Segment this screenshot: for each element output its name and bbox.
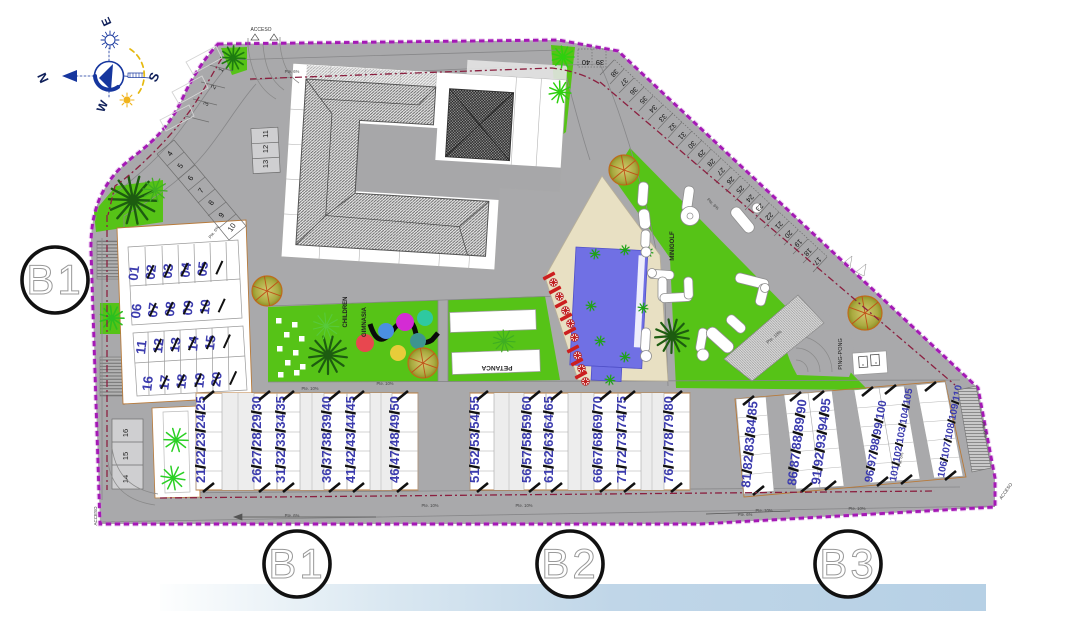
svg-text:W: W [94,98,112,115]
svg-text:01: 01 [126,264,143,281]
svg-text:06: 06 [128,302,145,319]
svg-text:26/27/28/29/30: 26/27/28/29/30 [249,396,264,483]
svg-text:GIMNASIA: GIMNASIA [362,306,368,337]
svg-text:40: 40 [582,58,590,67]
svg-text:Pte. 10%: Pte. 10% [516,503,533,508]
svg-text:B1: B1 [26,256,83,303]
svg-text:Pte. 10%: Pte. 10% [377,381,394,386]
svg-text:31/32/33/34/35: 31/32/33/34/35 [273,396,288,483]
svg-text:56/57/58/59/60: 56/57/58/59/60 [519,396,534,483]
svg-text:71/72/73/74/75: 71/72/73/74/75 [614,396,629,483]
svg-text:E: E [98,15,114,28]
svg-text:61/62/63/64/65: 61/62/63/64/65 [541,396,556,483]
svg-text:41/42/43/44/45: 41/42/43/44/45 [343,396,358,483]
svg-text:Pte. 10%: Pte. 10% [422,503,439,508]
svg-text:S: S [145,70,162,84]
svg-text:19: 19 [191,372,208,389]
svg-text:Pte. 10%: Pte. 10% [302,386,319,391]
svg-text:ACCESO: ACCESO [93,506,98,526]
svg-text:MINIGOLF: MINIGOLF [670,231,676,261]
svg-text:16: 16 [121,429,130,437]
svg-text:PETANCA: PETANCA [481,364,512,371]
svg-text:Pte. 6%: Pte. 6% [285,69,300,74]
svg-text:12: 12 [261,145,270,153]
svg-text:15: 15 [121,452,130,460]
svg-text:76/77/78/79/80: 76/77/78/79/80 [661,396,676,483]
svg-text:39: 39 [596,58,604,67]
svg-text:66/67/68/69/70: 66/67/68/69/70 [590,396,605,483]
svg-text:21/22/23/24/25: 21/22/23/24/25 [193,396,208,483]
svg-text:11: 11 [133,339,150,355]
svg-text:14: 14 [185,335,202,352]
svg-text:B1: B1 [268,540,325,587]
svg-text:B2: B2 [541,540,598,587]
svg-text:09: 09 [180,300,197,317]
svg-text:46/47/48/49/50: 46/47/48/49/50 [387,396,402,483]
svg-text:13: 13 [261,160,270,168]
svg-text:ACCESO: ACCESO [250,27,271,33]
svg-text:11: 11 [261,130,270,138]
svg-text:CHILDREN: CHILDREN [343,297,349,328]
svg-text:51/52/53/54/55: 51/52/53/54/55 [467,396,482,483]
svg-text:36/37/38/39/40: 36/37/38/39/40 [319,396,334,483]
svg-text:04: 04 [178,261,195,278]
svg-text:PING-PONG: PING-PONG [838,338,844,369]
svg-text:B3: B3 [819,540,876,587]
svg-text:Pte. 10%: Pte. 10% [849,506,866,511]
svg-text:ACCESO: ACCESO [998,482,1013,501]
svg-text:N: N [34,70,52,85]
svg-text:16: 16 [139,375,156,392]
